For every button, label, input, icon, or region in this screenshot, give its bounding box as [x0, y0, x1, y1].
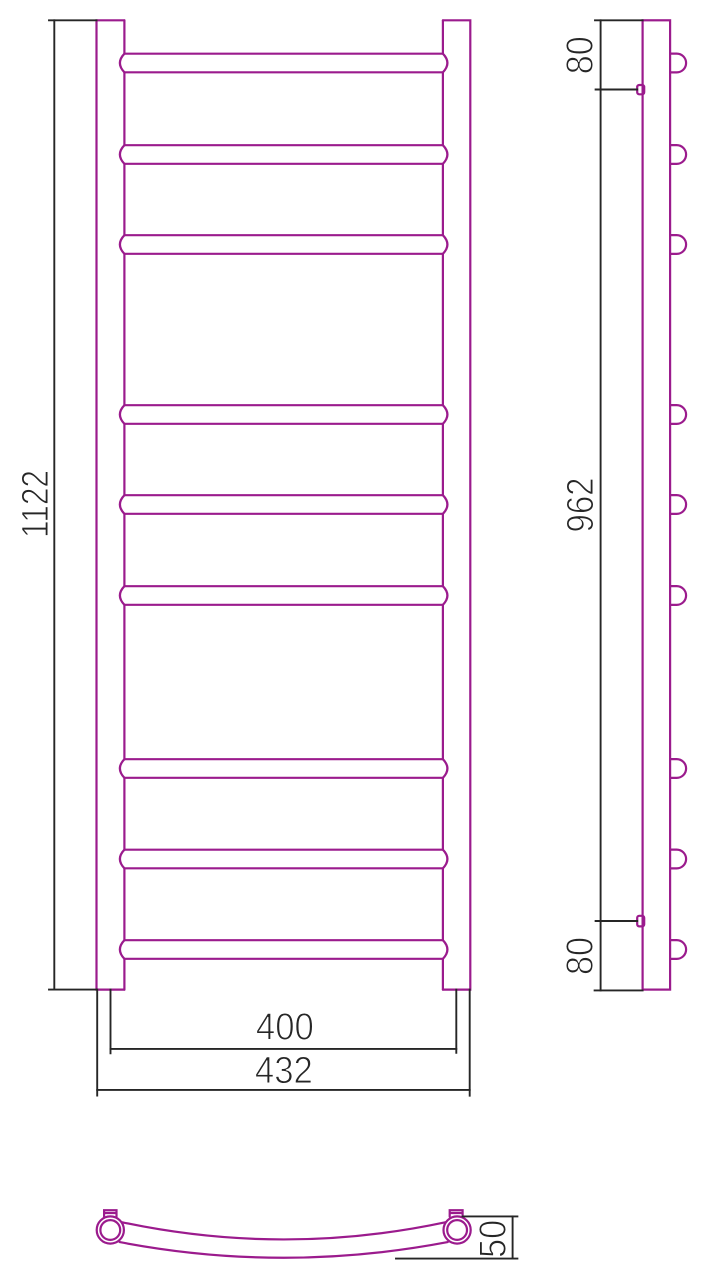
svg-text:80: 80 — [559, 36, 601, 74]
svg-text:80: 80 — [559, 937, 601, 975]
svg-text:432: 432 — [255, 1050, 313, 1092]
svg-text:962: 962 — [560, 478, 602, 533]
svg-text:400: 400 — [256, 1006, 314, 1048]
svg-text:50: 50 — [473, 1220, 515, 1258]
svg-text:1122: 1122 — [15, 470, 57, 538]
